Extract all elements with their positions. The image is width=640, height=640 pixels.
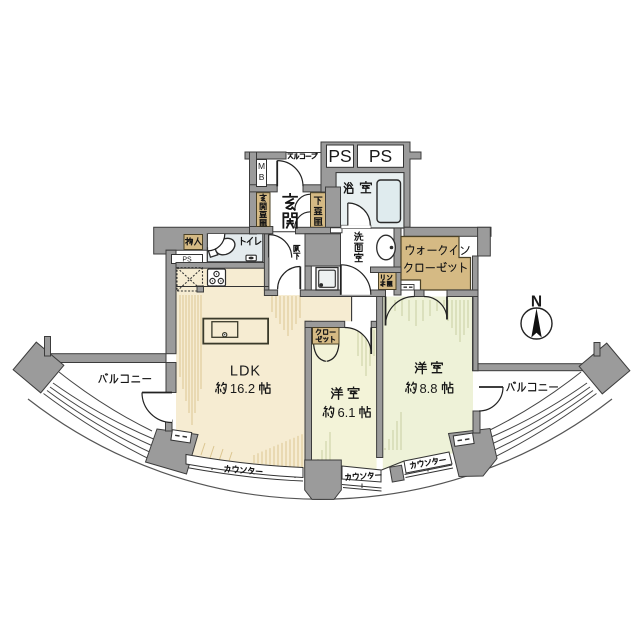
svg-text:B: B xyxy=(259,172,265,182)
svg-text:16.2: 16.2 xyxy=(230,381,255,396)
svg-text:M: M xyxy=(258,161,265,171)
svg-text:PS: PS xyxy=(182,257,192,264)
svg-text:LDK: LDK xyxy=(230,364,261,380)
svg-text:6.1: 6.1 xyxy=(337,405,355,420)
svg-text:PS: PS xyxy=(369,146,392,166)
svg-text:PS: PS xyxy=(328,146,351,166)
svg-text:8.8: 8.8 xyxy=(419,381,437,396)
svg-text:N: N xyxy=(531,294,542,311)
